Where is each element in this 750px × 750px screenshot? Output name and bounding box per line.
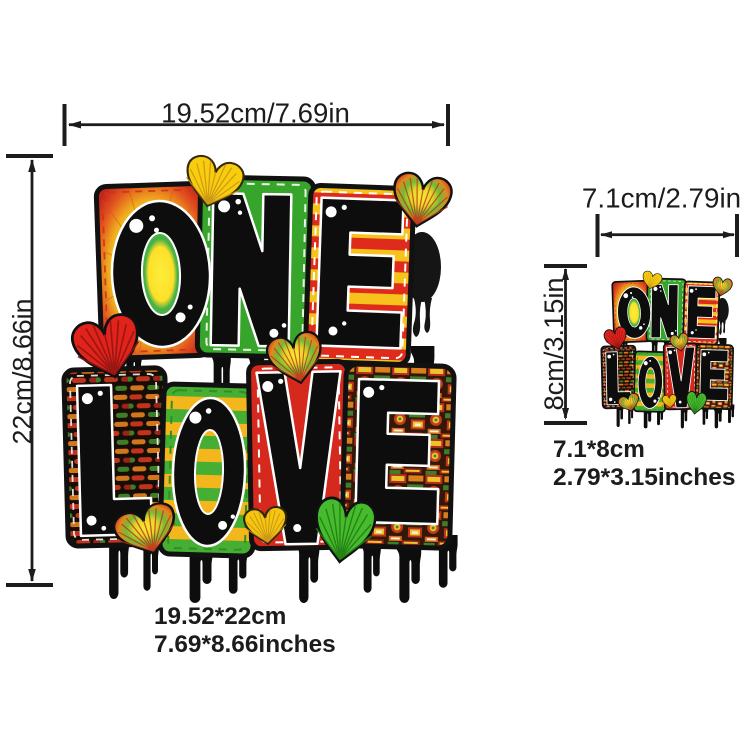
- svg-text:8cm/3.15in: 8cm/3.15in: [538, 278, 569, 411]
- svg-text:22cm/8.66in: 22cm/8.66in: [8, 299, 38, 445]
- svg-text:2.79*3.15inches: 2.79*3.15inches: [553, 464, 736, 491]
- svg-text:7.1cm/2.79in: 7.1cm/2.79in: [582, 183, 741, 214]
- svg-text:7.69*8.66inches: 7.69*8.66inches: [154, 631, 336, 658]
- svg-text:19.52cm/7.69in: 19.52cm/7.69in: [161, 98, 350, 129]
- svg-text:7.1*8cm: 7.1*8cm: [553, 436, 645, 463]
- svg-text:19.52*22cm: 19.52*22cm: [154, 603, 286, 630]
